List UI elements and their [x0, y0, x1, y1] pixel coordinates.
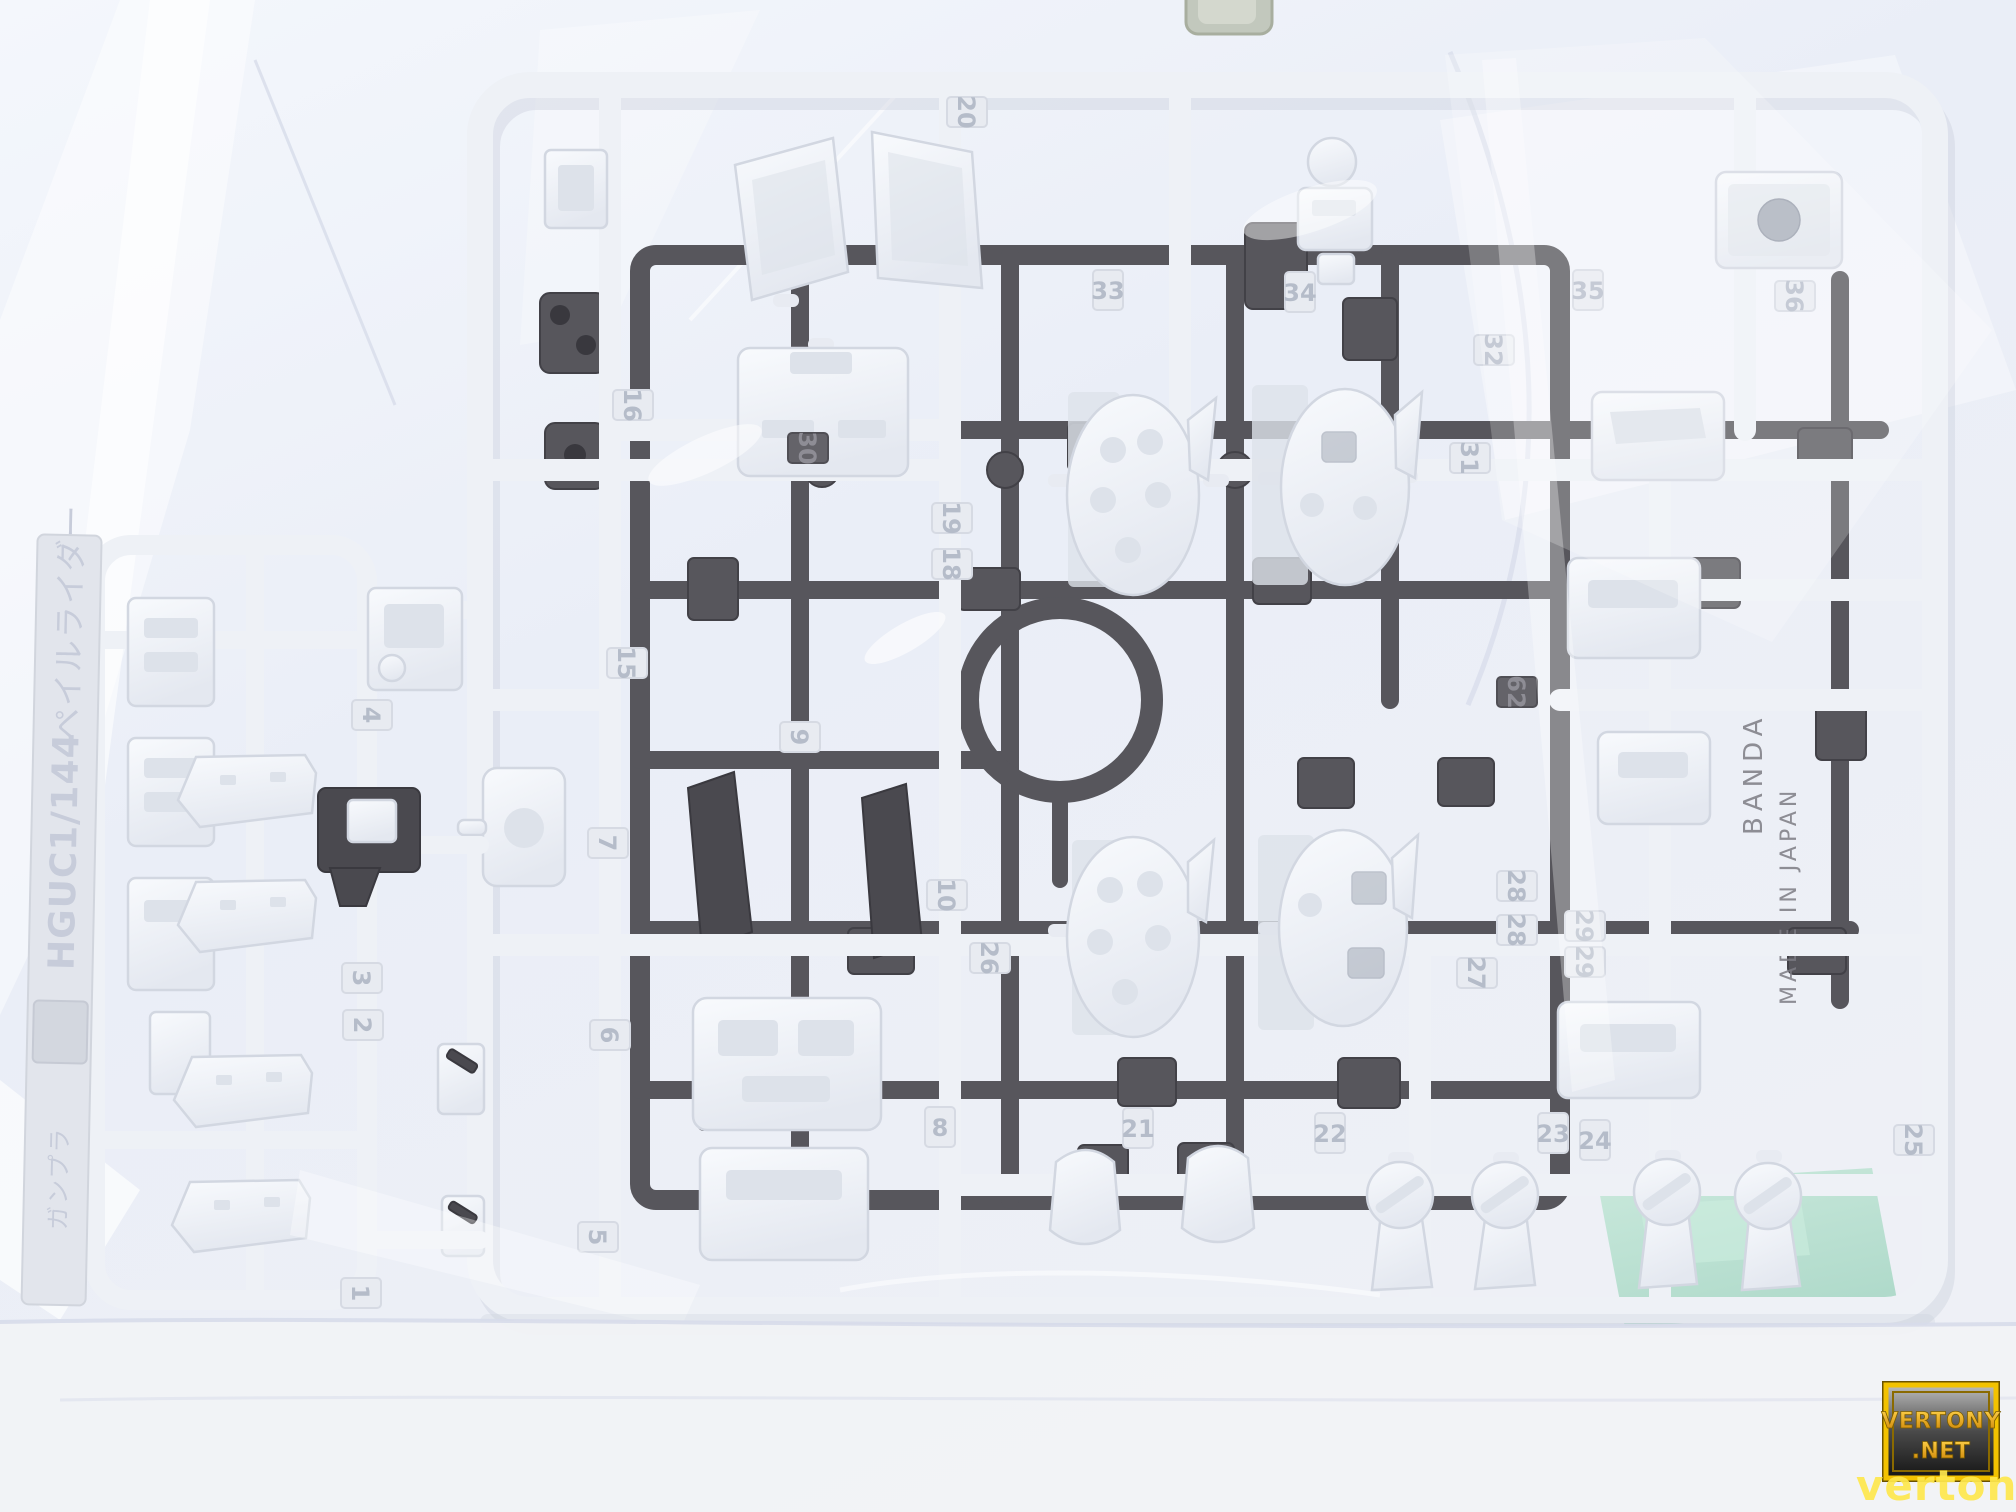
part-arm-armor-3 — [1598, 732, 1710, 824]
watermark-url-overlay: vertony.net — [1856, 1461, 2016, 1510]
part-number-tag: 62 — [1497, 675, 1537, 708]
part-cube — [545, 150, 607, 228]
svg-text:4: 4 — [357, 707, 385, 724]
svg-text:9: 9 — [785, 729, 813, 746]
part-shield-plate-1 — [178, 755, 316, 827]
svg-text:25: 25 — [1899, 1123, 1927, 1156]
part-ankle-guard-right — [1182, 1146, 1254, 1242]
part-shield-plate-4 — [172, 1180, 310, 1252]
svg-text:20: 20 — [952, 95, 980, 128]
photo-canvas: BANDAI MADE IN JAPAN — [0, 0, 2016, 1512]
part-number-tag: 6 — [590, 1020, 630, 1050]
part-number-tag: 25 — [1894, 1123, 1934, 1156]
part-number-tag: 34 — [1283, 272, 1316, 312]
runner-tag-note: ガンプラ — [44, 1126, 74, 1230]
bag-tape-closure — [1186, 0, 1272, 34]
svg-text:62: 62 — [1502, 675, 1530, 708]
part-number-tag: 1 — [341, 1278, 381, 1308]
part-number-tag: 2 — [343, 1010, 383, 1040]
part-number-tag: 24 — [1578, 1120, 1611, 1160]
part-number-tag: 22 — [1313, 1113, 1346, 1153]
watermark-line1: VERTONY — [1881, 1409, 2001, 1434]
part-number-tag: 5 — [578, 1222, 618, 1252]
part-shield-plate-2 — [178, 880, 316, 952]
svg-text:23: 23 — [1536, 1120, 1569, 1148]
svg-text:34: 34 — [1283, 279, 1316, 307]
part-slash-block-upper — [438, 1044, 484, 1114]
part-number-tag: 31 — [1450, 441, 1490, 474]
part-shield-plate-3 — [174, 1055, 312, 1127]
svg-text:16: 16 — [618, 388, 646, 421]
svg-text:19: 19 — [937, 501, 965, 534]
svg-text:31: 31 — [1455, 441, 1483, 474]
svg-text:8: 8 — [932, 1114, 949, 1142]
part-number-tag: 3 — [342, 963, 382, 993]
svg-text:18: 18 — [937, 547, 965, 580]
part-number-tag: 30 — [788, 431, 828, 464]
svg-text:24: 24 — [1578, 1127, 1611, 1155]
svg-text:2: 2 — [348, 1017, 376, 1034]
part-nozzle-box — [368, 588, 462, 690]
svg-text:7: 7 — [593, 835, 621, 852]
svg-text:5: 5 — [583, 1229, 611, 1246]
part-number-tag: 18 — [932, 547, 972, 580]
part-number-tag: 19 — [932, 501, 972, 534]
part-number-tag: 27 — [1457, 956, 1497, 989]
part-number-tag: 7 — [588, 828, 628, 858]
svg-text:6: 6 — [595, 1027, 623, 1044]
part-number-tag: 4 — [352, 700, 392, 730]
part-number-tag: 15 — [607, 646, 647, 679]
svg-text:1: 1 — [346, 1285, 374, 1302]
part-skirt-block — [700, 1148, 868, 1260]
svg-text:21: 21 — [1121, 1115, 1154, 1143]
svg-text:26: 26 — [975, 941, 1003, 974]
part-number-tag: 23 — [1536, 1113, 1569, 1153]
svg-text:15: 15 — [612, 646, 640, 679]
part-number-tag: 21 — [1121, 1108, 1154, 1148]
part-number-tag: 8 — [925, 1107, 955, 1147]
part-waist-block — [693, 998, 881, 1130]
svg-text:10: 10 — [932, 878, 960, 911]
bag-bottom-edge — [0, 1314, 2016, 1512]
svg-text:30: 30 — [793, 431, 821, 464]
part-number-tag: 20 — [947, 95, 987, 128]
part-wing-panel-left — [735, 138, 848, 300]
embossed-origin: MADE IN JAPAN — [1777, 787, 1802, 1005]
runner-letter-badge — [33, 1000, 88, 1063]
svg-text:28: 28 — [1502, 913, 1530, 946]
svg-text:33: 33 — [1091, 277, 1124, 305]
svg-text:3: 3 — [347, 970, 375, 987]
part-number-tag: 10 — [927, 878, 967, 911]
runner-tag-kit-name: ペイルライダー — [48, 503, 91, 740]
part-number-tag: 28 — [1497, 913, 1537, 946]
part-number-tag: 9 — [780, 722, 820, 752]
svg-text:27: 27 — [1462, 956, 1490, 989]
part-number-tag: 16 — [613, 388, 653, 421]
part-number-tag: 26 — [970, 941, 1010, 974]
part-wing-panel-right — [872, 132, 982, 288]
runner-tag-scale: HGUC1/144 — [42, 732, 88, 970]
part-small-panel-1 — [128, 598, 214, 706]
part-number-tag: 28 — [1497, 869, 1537, 902]
embossed-brand: BANDAI — [1739, 699, 1769, 835]
svg-text:28: 28 — [1502, 869, 1530, 902]
photo-of-gunpla-runner-in-bag: BANDAI MADE IN JAPAN — [0, 0, 2016, 1512]
part-number-tag: 33 — [1091, 270, 1124, 310]
svg-text:22: 22 — [1313, 1120, 1346, 1148]
part-ankle-guard-left — [1050, 1150, 1120, 1244]
